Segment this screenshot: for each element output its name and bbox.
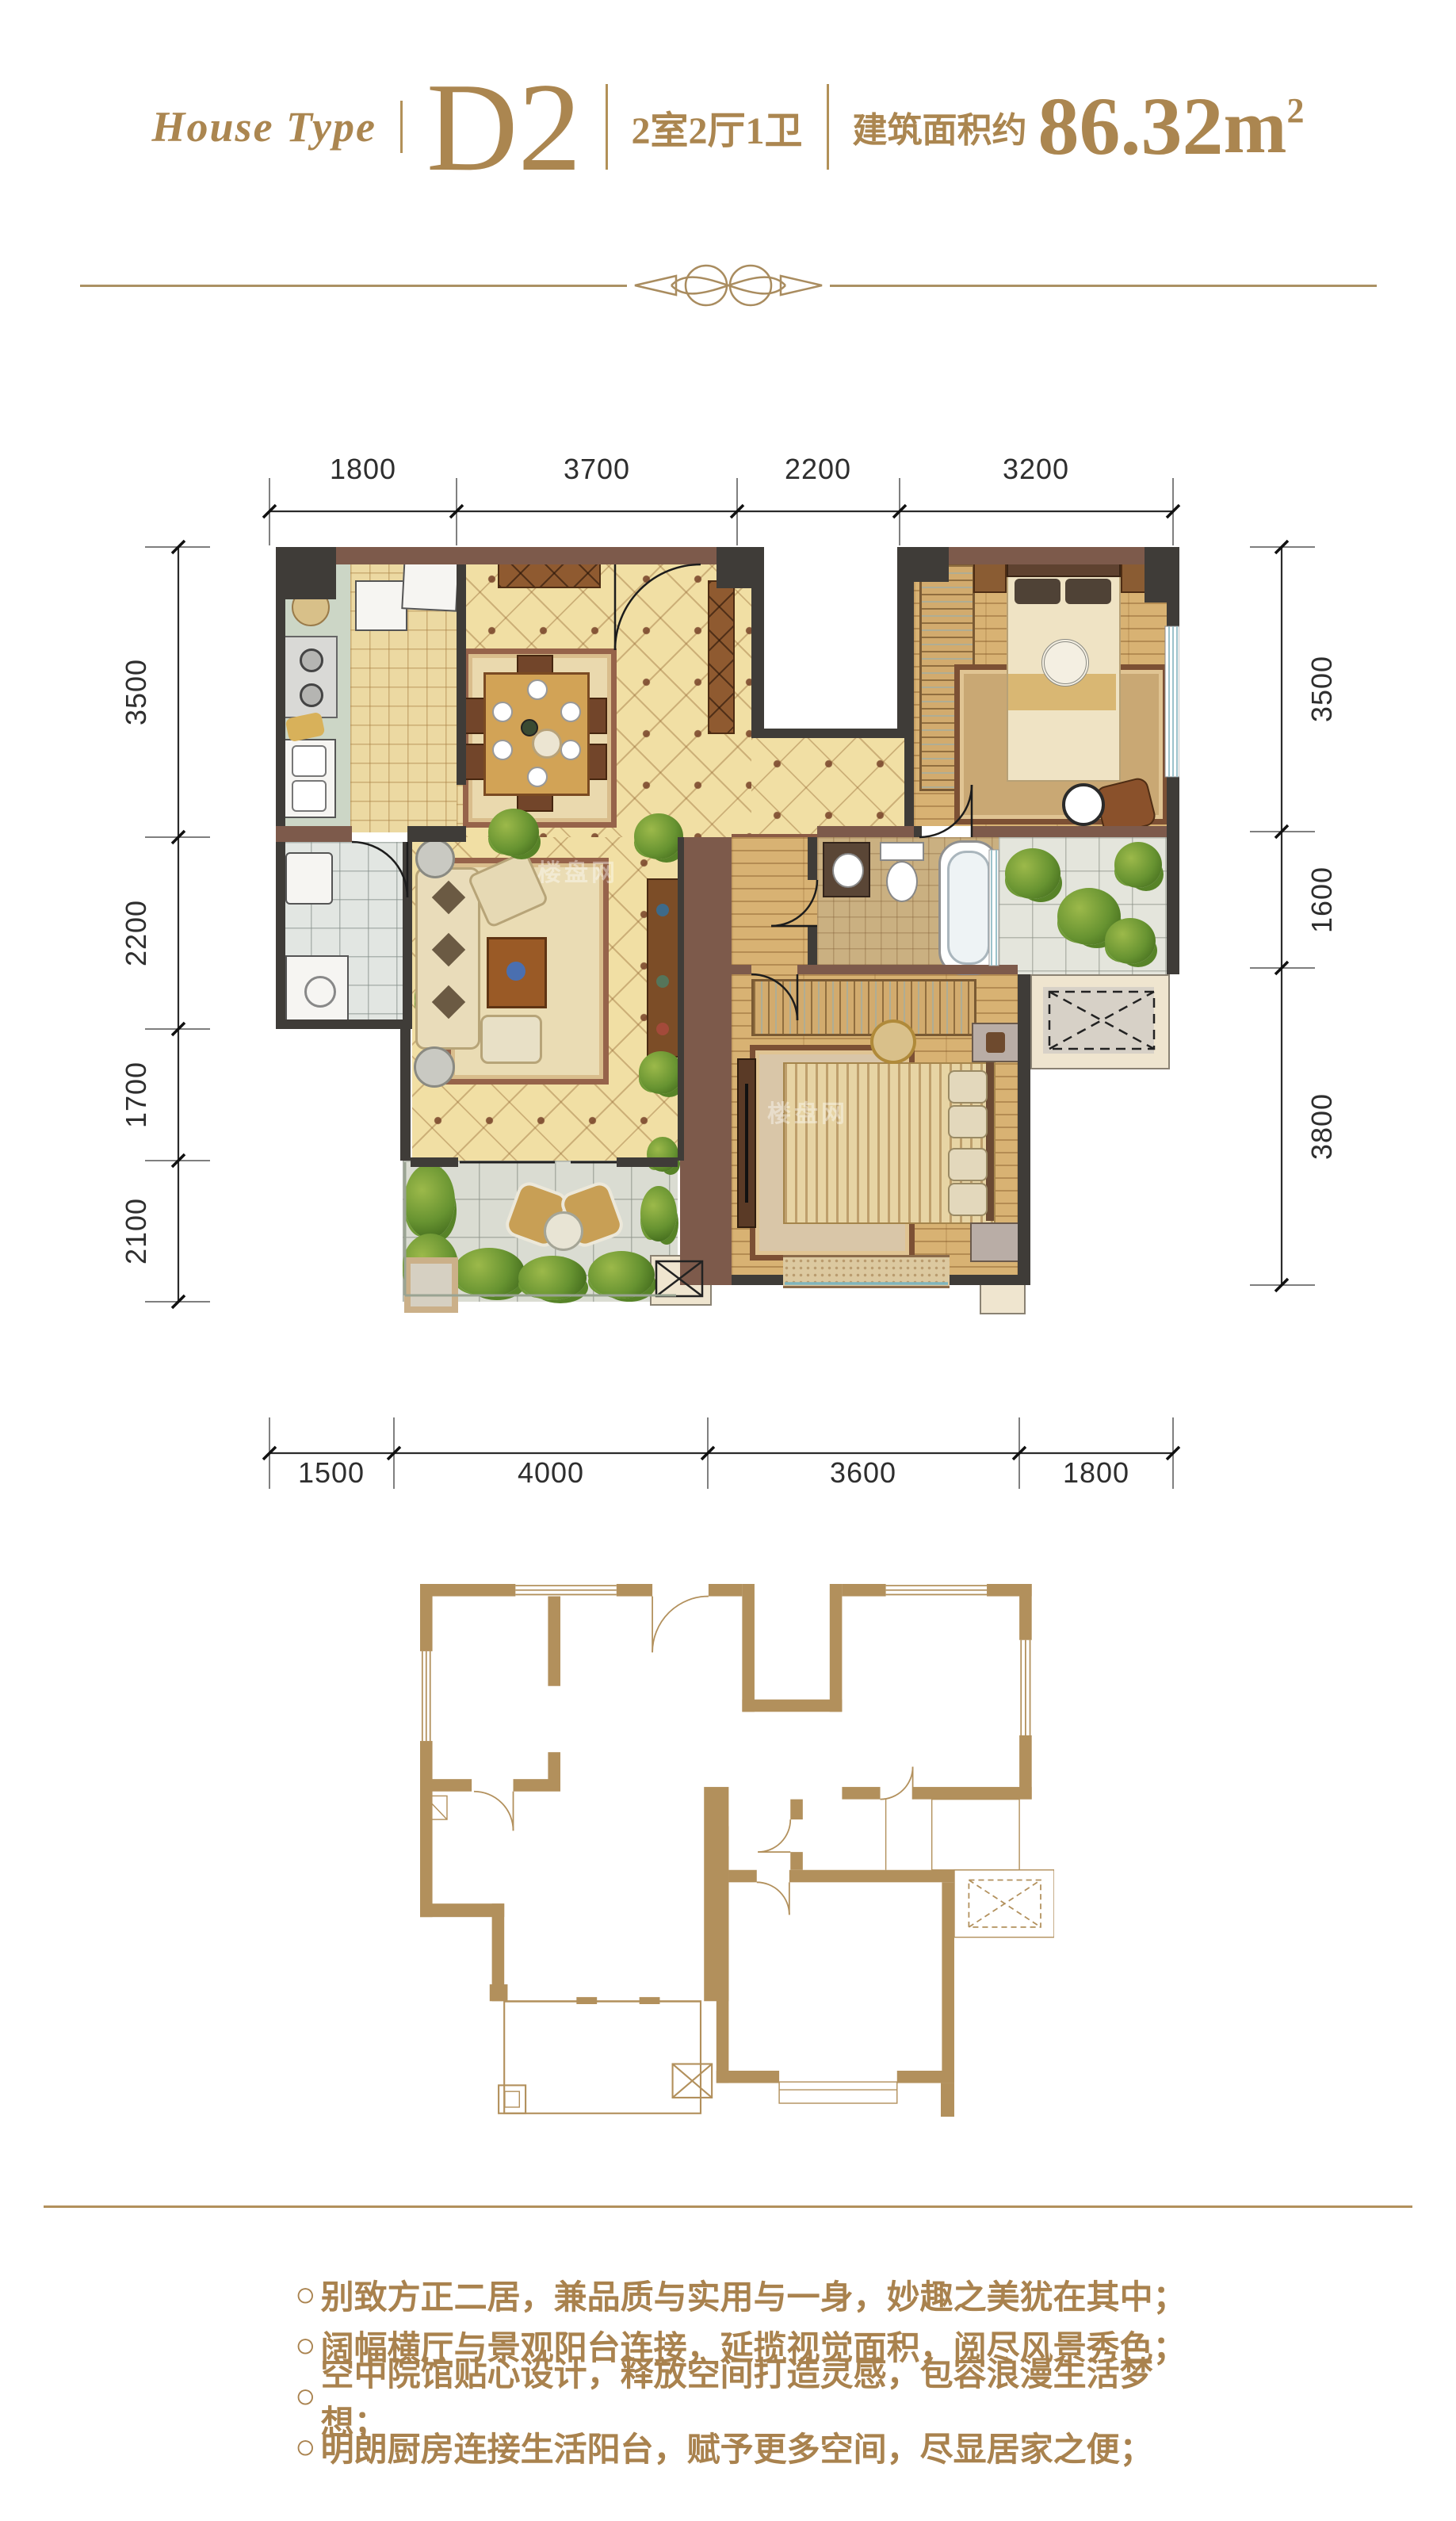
main-floorplan: 楼盘网 楼盘网 <box>276 547 1179 1336</box>
watermark: 楼盘网 <box>767 1094 848 1129</box>
watermark: 楼盘网 <box>537 853 618 888</box>
plan-overlay <box>276 547 1179 1336</box>
floorplan-page: House Type D2 2室2厅1卫 建筑面积约 86.32 m 2 <box>0 0 1456 2521</box>
